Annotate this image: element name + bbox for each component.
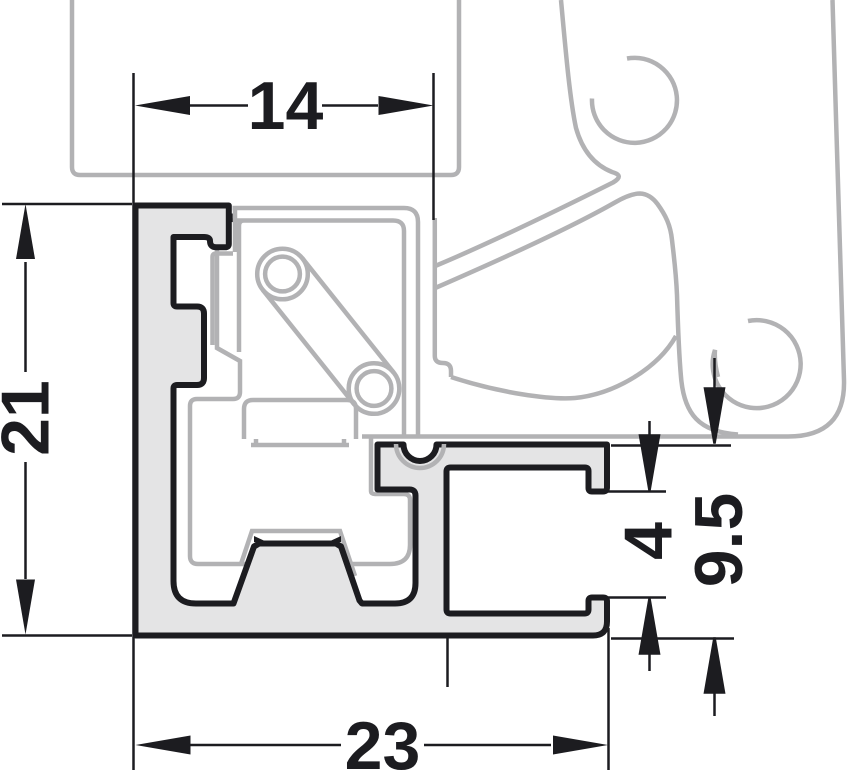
svg-text:14: 14	[248, 68, 324, 144]
svg-text:23: 23	[345, 708, 421, 776]
svg-text:4: 4	[611, 522, 687, 560]
svg-text:9.5: 9.5	[681, 493, 757, 588]
svg-text:21: 21	[0, 380, 64, 456]
